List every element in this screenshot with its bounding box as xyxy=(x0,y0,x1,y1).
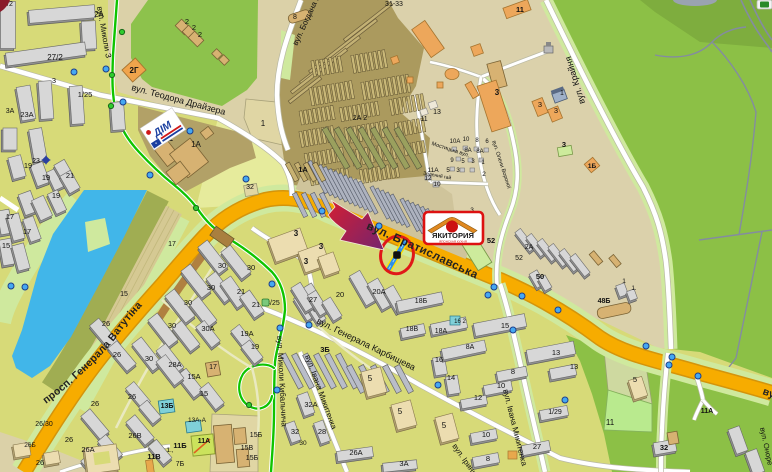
svg-text:23А: 23А xyxy=(20,110,33,119)
svg-text:11А: 11А xyxy=(701,408,713,415)
svg-text:15: 15 xyxy=(501,321,509,330)
svg-text:15Б: 15Б xyxy=(246,455,259,462)
svg-text:17: 17 xyxy=(6,212,14,221)
svg-text:11В: 11В xyxy=(147,452,161,461)
svg-text:30: 30 xyxy=(184,298,192,307)
svg-text:1А: 1А xyxy=(298,165,308,174)
svg-text:10А: 10А xyxy=(450,139,461,145)
svg-text:32: 32 xyxy=(246,184,254,191)
svg-text:18В: 18В xyxy=(406,326,419,333)
svg-text:10: 10 xyxy=(463,137,470,143)
svg-text:5: 5 xyxy=(398,407,403,416)
svg-text:3Б: 3Б xyxy=(320,345,330,354)
svg-text:1А: 1А xyxy=(191,140,201,149)
svg-text:3: 3 xyxy=(319,242,324,251)
svg-text:32: 32 xyxy=(660,443,668,452)
svg-text:31-33: 31-33 xyxy=(385,1,403,8)
svg-text:15А: 15А xyxy=(187,372,200,381)
svg-text:12: 12 xyxy=(474,393,482,402)
svg-text:30: 30 xyxy=(168,321,176,330)
svg-text:26Б: 26Б xyxy=(24,442,36,449)
svg-text:14: 14 xyxy=(447,373,455,382)
svg-text:3А: 3А xyxy=(6,108,15,115)
svg-text:7Б: 7Б xyxy=(176,461,185,468)
svg-text:13А-А: 13А-А xyxy=(188,417,207,424)
svg-text:26А: 26А xyxy=(349,448,362,457)
svg-text:10: 10 xyxy=(497,381,505,390)
svg-text:18Б: 18Б xyxy=(415,298,428,305)
svg-text:15В: 15В xyxy=(241,445,254,452)
svg-text:5: 5 xyxy=(368,374,373,383)
svg-text:17: 17 xyxy=(168,241,176,248)
svg-text:2: 2 xyxy=(185,17,189,26)
svg-text:3: 3 xyxy=(495,88,500,97)
svg-text:1/29: 1/29 xyxy=(548,409,562,416)
svg-text:15: 15 xyxy=(2,241,10,250)
svg-text:17: 17 xyxy=(209,364,217,371)
svg-text:1.,: 1., xyxy=(166,447,173,454)
svg-text:28: 28 xyxy=(318,427,326,436)
svg-text:10: 10 xyxy=(433,181,441,188)
svg-text:16 2: 16 2 xyxy=(454,319,466,325)
svg-text:30: 30 xyxy=(218,261,226,270)
svg-text:17: 17 xyxy=(23,227,31,236)
svg-text:32А: 32А xyxy=(304,400,317,409)
svg-text:11: 11 xyxy=(420,116,427,123)
svg-text:27: 27 xyxy=(309,295,317,304)
svg-text:18А: 18А xyxy=(435,328,448,335)
svg-text:15: 15 xyxy=(200,389,208,398)
svg-text:13: 13 xyxy=(570,362,578,371)
svg-text:48Б: 48Б xyxy=(598,298,611,305)
svg-text:11А: 11А xyxy=(427,167,439,174)
svg-text:30: 30 xyxy=(207,283,215,292)
svg-text:2: 2 xyxy=(192,23,196,32)
svg-text:19А: 19А xyxy=(240,329,253,338)
svg-text:52: 52 xyxy=(515,255,523,262)
svg-text:8А: 8А xyxy=(466,344,475,351)
svg-text:30: 30 xyxy=(247,263,255,272)
svg-text:19: 19 xyxy=(24,161,32,170)
svg-text:1: 1 xyxy=(622,278,626,285)
svg-text:26/30: 26/30 xyxy=(35,421,53,428)
svg-text:2: 2 xyxy=(482,171,486,178)
svg-text:50: 50 xyxy=(536,272,544,281)
svg-text:26: 26 xyxy=(128,392,136,401)
svg-text:30: 30 xyxy=(299,440,307,447)
svg-text:11: 11 xyxy=(606,418,615,427)
svg-text:19: 19 xyxy=(42,173,50,182)
svg-text:13Б: 13Б xyxy=(161,403,174,410)
svg-text:8: 8 xyxy=(293,14,297,21)
svg-text:27: 27 xyxy=(533,442,541,451)
svg-text:3: 3 xyxy=(562,140,566,149)
svg-text:15: 15 xyxy=(120,291,128,298)
svg-text:10: 10 xyxy=(482,430,490,439)
svg-text:8: 8 xyxy=(486,454,490,463)
svg-text:19: 19 xyxy=(251,342,259,351)
svg-text:3: 3 xyxy=(52,76,56,85)
svg-text:11: 11 xyxy=(516,5,524,14)
svg-text:1Б: 1Б xyxy=(588,163,597,170)
svg-text:52: 52 xyxy=(487,236,495,245)
svg-text:20: 20 xyxy=(336,290,344,299)
svg-text:5: 5 xyxy=(633,375,637,384)
svg-text:15Б: 15Б xyxy=(250,432,263,439)
svg-text:21: 21 xyxy=(237,287,245,296)
svg-text:2: 2 xyxy=(198,30,202,39)
svg-text:21: 21 xyxy=(66,171,74,180)
svg-text:26: 26 xyxy=(65,435,73,444)
svg-text:1.: 1. xyxy=(631,286,636,292)
svg-text:13: 13 xyxy=(552,348,560,357)
svg-text:32: 32 xyxy=(291,427,299,436)
svg-text:1: 1 xyxy=(560,90,564,97)
svg-text:11А: 11А xyxy=(198,438,210,445)
svg-text:2А 2: 2А 2 xyxy=(353,115,368,122)
svg-text:26: 26 xyxy=(36,458,44,467)
svg-text:3: 3 xyxy=(304,257,309,266)
svg-text:11Б: 11Б xyxy=(173,441,187,450)
svg-text:13: 13 xyxy=(433,109,441,116)
svg-text:26: 26 xyxy=(102,319,110,328)
svg-text:3: 3 xyxy=(538,100,542,109)
svg-text:26В: 26В xyxy=(128,431,141,440)
svg-text:30А: 30А xyxy=(201,324,214,333)
svg-text:26А: 26А xyxy=(81,445,94,454)
svg-text:3А: 3А xyxy=(399,459,408,468)
svg-text:1: 1 xyxy=(261,119,266,128)
svg-text:5: 5 xyxy=(442,421,447,430)
svg-text:23: 23 xyxy=(32,158,40,165)
svg-text:21: 21 xyxy=(252,300,260,309)
svg-text:3: 3 xyxy=(554,106,558,115)
svg-text:8: 8 xyxy=(511,367,515,376)
svg-text:28А: 28А xyxy=(168,360,181,369)
svg-text:27/2: 27/2 xyxy=(47,53,63,62)
svg-text:19: 19 xyxy=(52,191,60,200)
svg-text:8А: 8А xyxy=(476,149,483,155)
svg-text:3: 3 xyxy=(294,229,299,238)
svg-text:20А: 20А xyxy=(372,287,385,296)
svg-text:2Г: 2Г xyxy=(130,66,139,75)
svg-text:16: 16 xyxy=(435,355,443,364)
svg-text:2А: 2А xyxy=(525,244,534,251)
svg-text:12: 12 xyxy=(424,175,432,182)
svg-text:26: 26 xyxy=(91,399,99,408)
svg-text:26: 26 xyxy=(113,350,121,359)
svg-text:30: 30 xyxy=(145,354,153,363)
svg-text:1/25: 1/25 xyxy=(78,90,93,99)
svg-text:ЯПОНСКАЯ КУХНЯ: ЯПОНСКАЯ КУХНЯ xyxy=(439,240,467,244)
